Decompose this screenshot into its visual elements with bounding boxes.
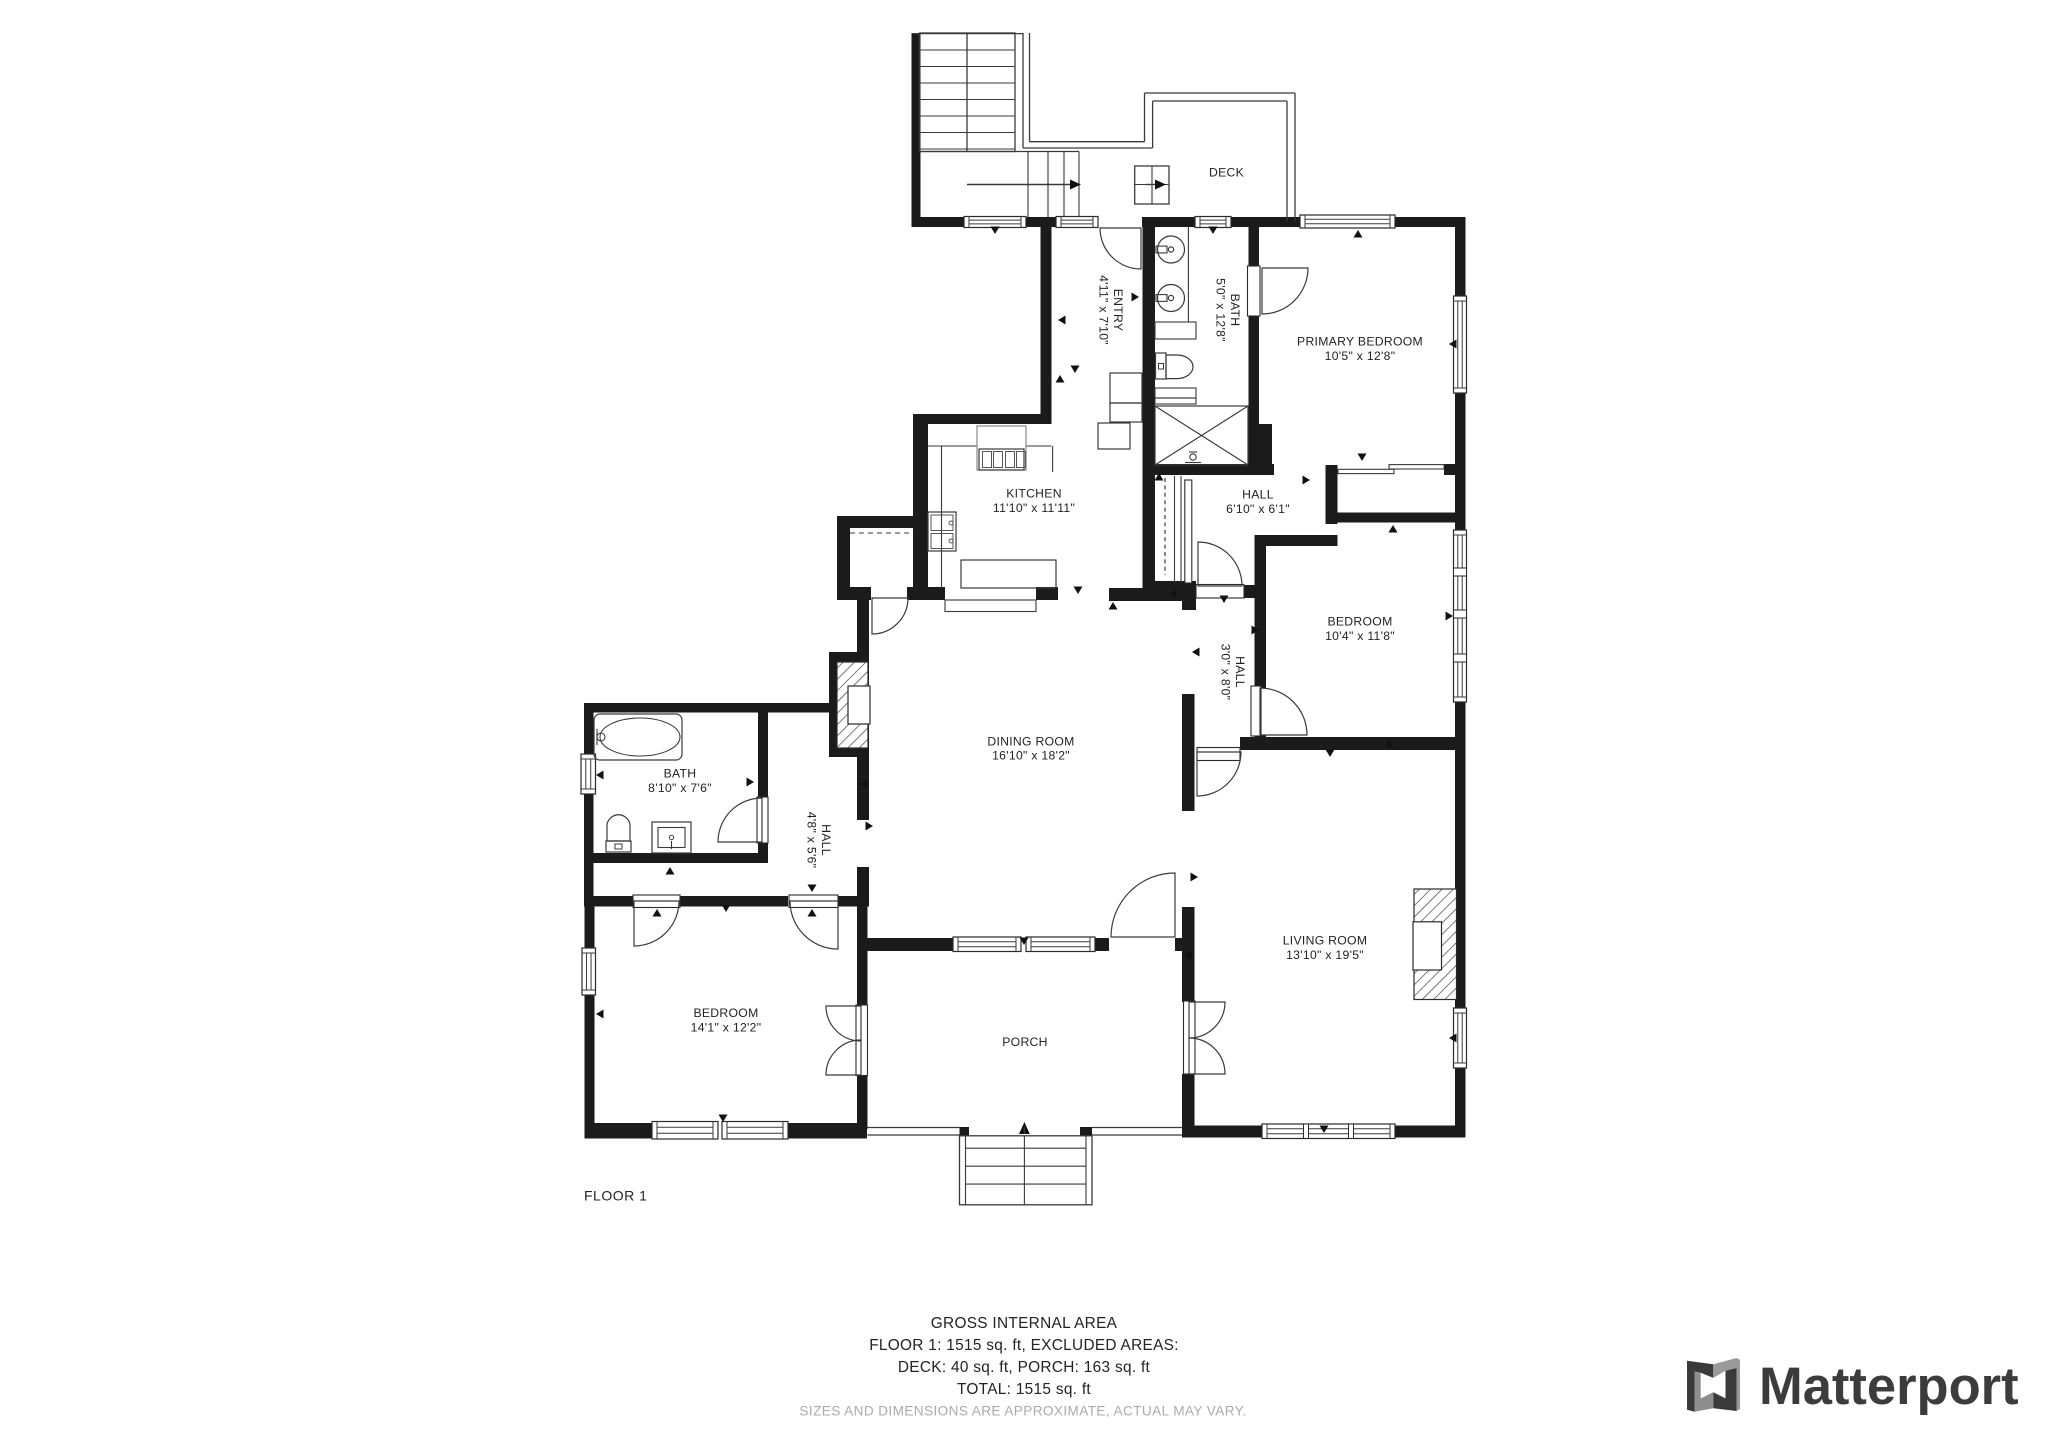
- svg-text:FLOOR 1: FLOOR 1: [584, 1188, 647, 1204]
- svg-text:BEDROOM: BEDROOM: [693, 1006, 758, 1020]
- svg-text:FLOOR 1: 1515 sq. ft, EXCLUDED: FLOOR 1: 1515 sq. ft, EXCLUDED AREAS:: [869, 1337, 1179, 1354]
- svg-text:DINING ROOM: DINING ROOM: [987, 734, 1074, 748]
- svg-text:8'10" x 7'6": 8'10" x 7'6": [648, 781, 712, 795]
- svg-text:10'5" x 12'8": 10'5" x 12'8": [1325, 349, 1396, 363]
- svg-text:SIZES AND DIMENSIONS ARE APPRO: SIZES AND DIMENSIONS ARE APPROXIMATE, AC…: [799, 1404, 1246, 1419]
- svg-text:PRIMARY BEDROOM: PRIMARY BEDROOM: [1297, 335, 1423, 349]
- svg-text:13'10" x 19'5": 13'10" x 19'5": [1286, 948, 1364, 962]
- svg-text:BEDROOM: BEDROOM: [1327, 615, 1392, 629]
- svg-text:DECK: 40 sq. ft, PORCH: 163 sq: DECK: 40 sq. ft, PORCH: 163 sq. ft: [898, 1359, 1151, 1376]
- svg-text:4'8" x 5'6": 4'8" x 5'6": [805, 812, 819, 869]
- svg-text:4'11" x 7'10": 4'11" x 7'10": [1097, 275, 1111, 345]
- svg-text:11'10" x 11'11": 11'10" x 11'11": [993, 501, 1075, 515]
- svg-text:GROSS INTERNAL AREA: GROSS INTERNAL AREA: [931, 1315, 1118, 1332]
- svg-text:6'10" x 6'1": 6'10" x 6'1": [1226, 502, 1290, 516]
- svg-text:LIVING ROOM: LIVING ROOM: [1283, 934, 1368, 948]
- svg-text:16'10" x 18'2": 16'10" x 18'2": [992, 749, 1070, 763]
- svg-text:HALL: HALL: [1242, 488, 1274, 502]
- svg-text:KITCHEN: KITCHEN: [1006, 487, 1062, 501]
- svg-text:TOTAL: 1515 sq. ft: TOTAL: 1515 sq. ft: [957, 1381, 1091, 1398]
- svg-text:10'4" x 11'8": 10'4" x 11'8": [1325, 629, 1395, 643]
- svg-text:DECK: DECK: [1209, 166, 1244, 180]
- svg-text:3'0" x 8'0": 3'0" x 8'0": [1219, 644, 1233, 701]
- svg-text:5'0" x 12'8": 5'0" x 12'8": [1214, 278, 1228, 342]
- svg-text:ENTRY: ENTRY: [1111, 289, 1125, 332]
- svg-text:HALL: HALL: [1233, 656, 1247, 688]
- svg-text:PORCH: PORCH: [1002, 1035, 1048, 1049]
- svg-text:14'1" x 12'2": 14'1" x 12'2": [691, 1020, 762, 1034]
- svg-text:HALL: HALL: [819, 824, 833, 856]
- svg-text:Matterport: Matterport: [1759, 1357, 2019, 1416]
- svg-text:BATH: BATH: [664, 767, 697, 781]
- svg-text:BATH: BATH: [1228, 294, 1242, 327]
